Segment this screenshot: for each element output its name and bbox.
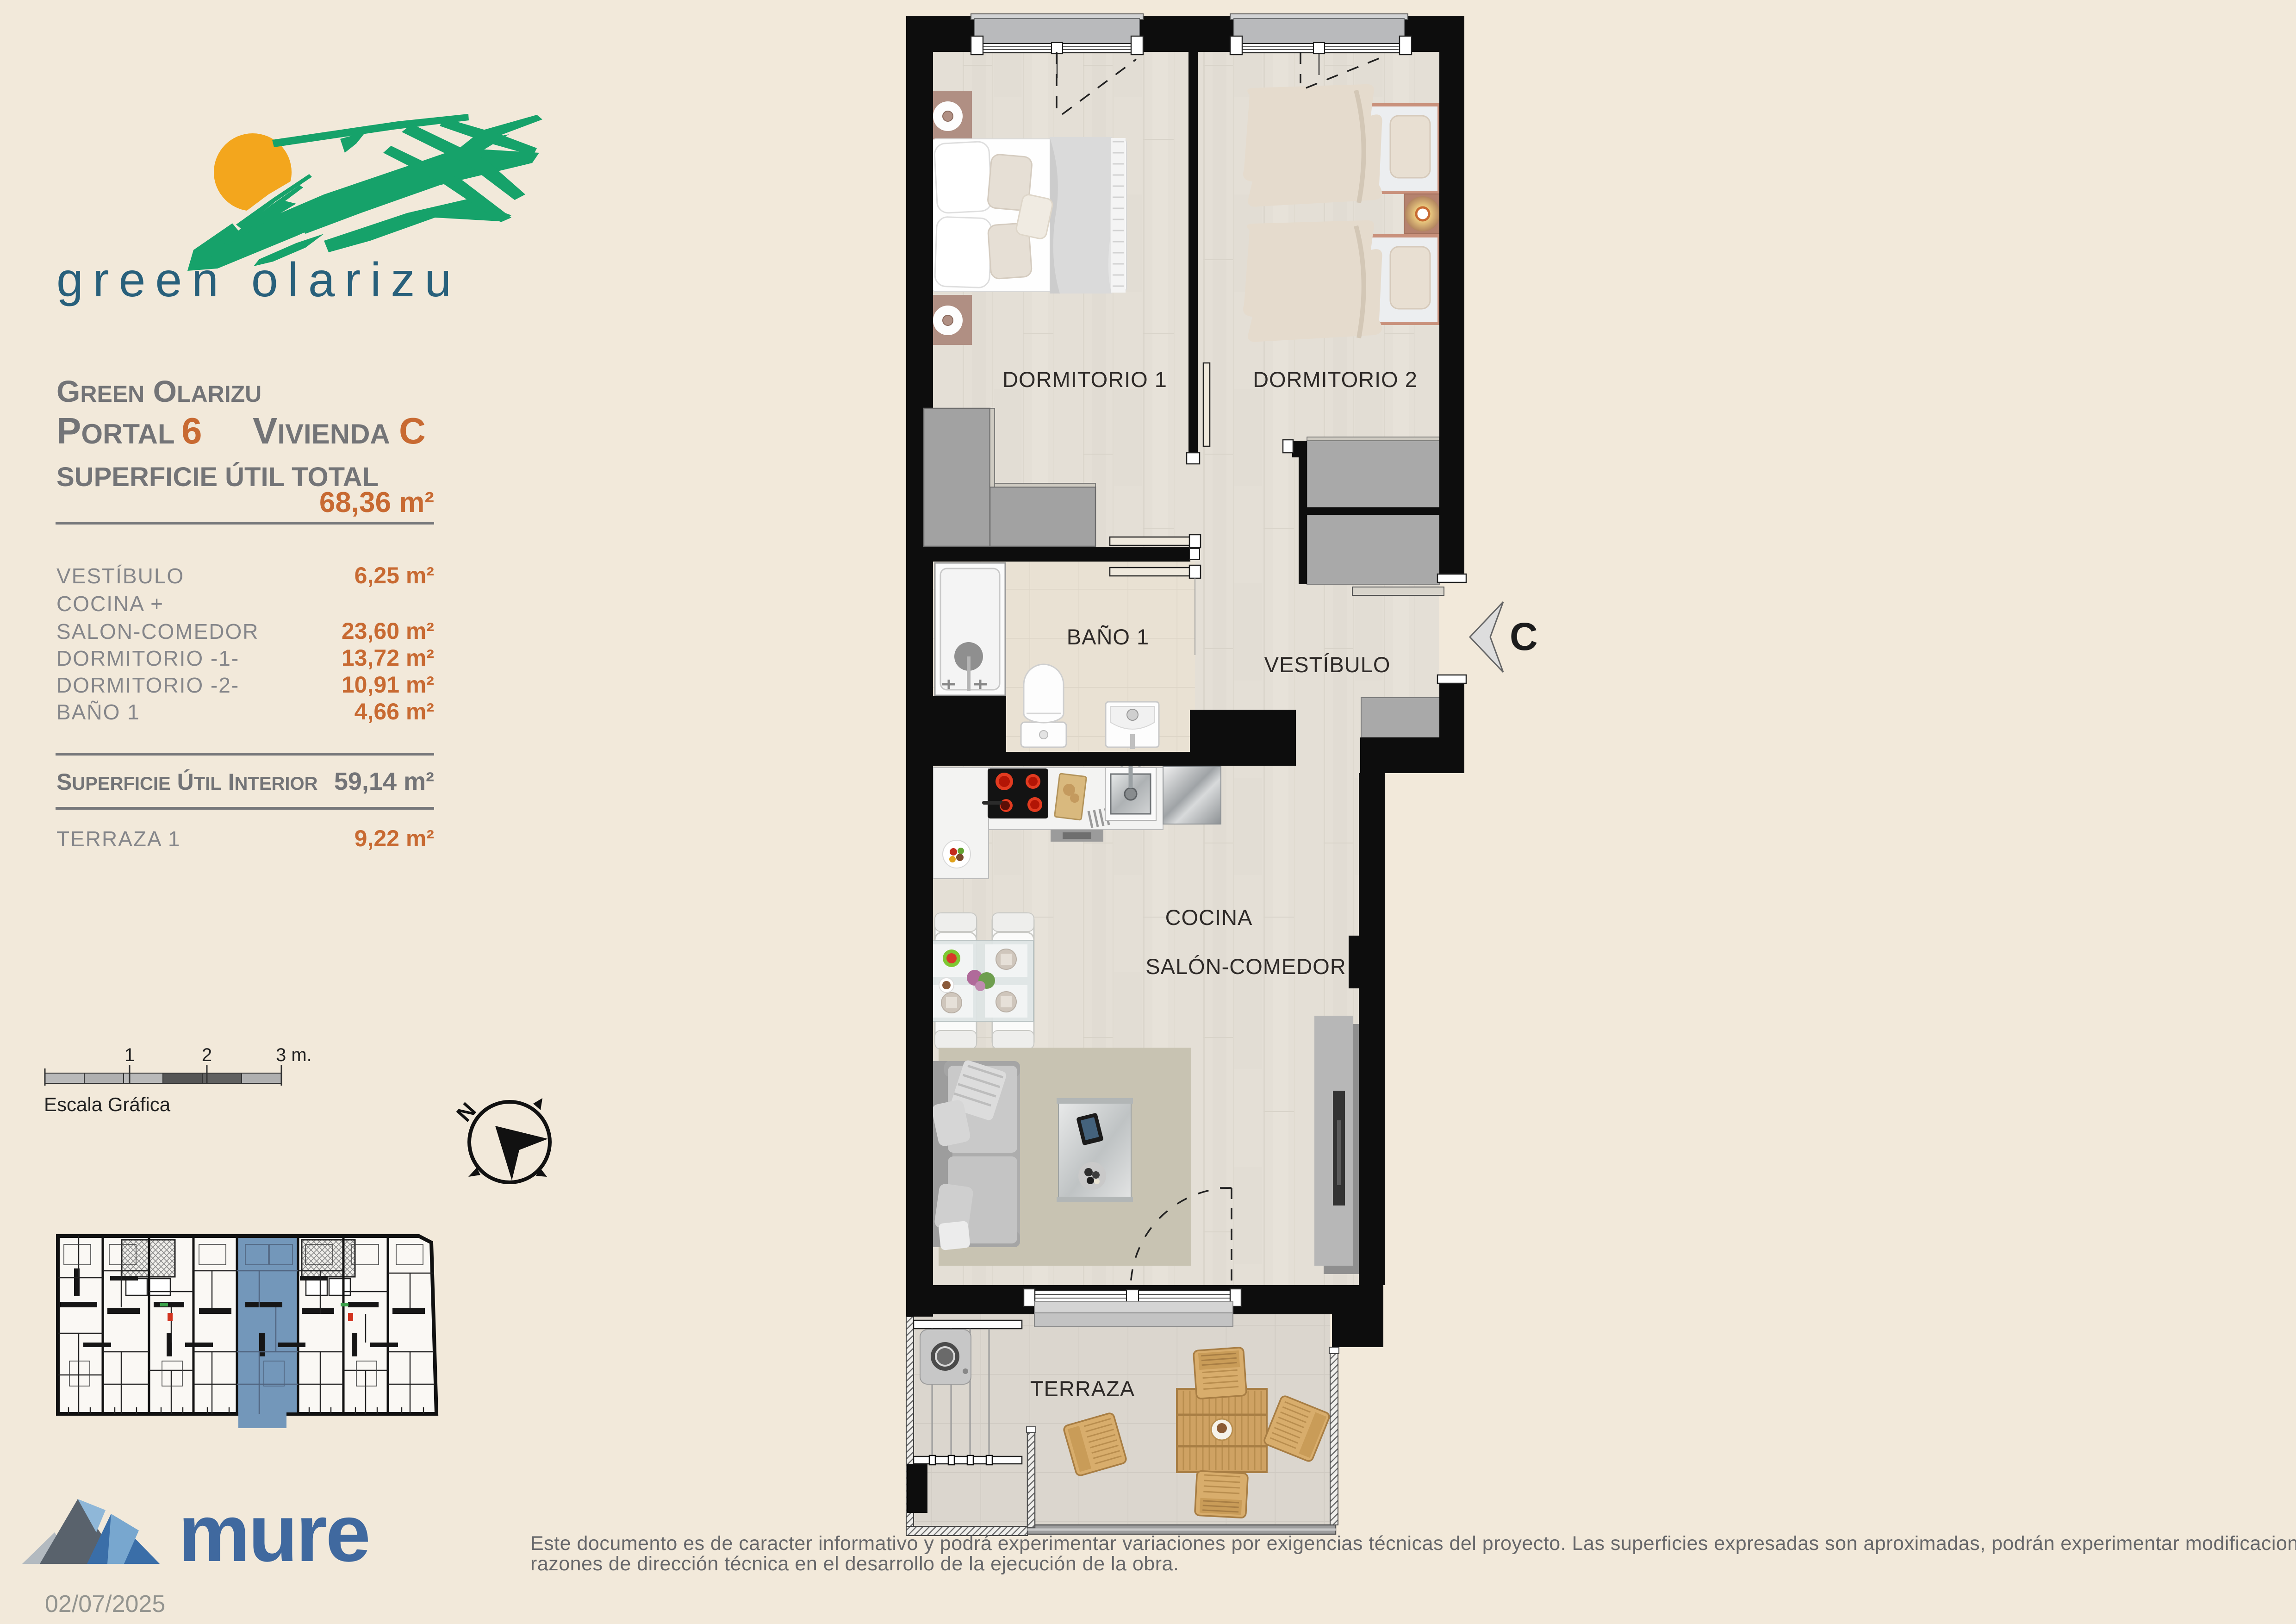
svg-text:59,14 m²: 59,14 m² [334, 768, 434, 795]
svg-text:02/07/2025: 02/07/2025 [45, 1591, 165, 1618]
svg-text:BAÑO 1: BAÑO 1 [1067, 625, 1149, 649]
svg-text:Escala Gráfica: Escala Gráfica [44, 1093, 171, 1115]
svg-text:2: 2 [202, 1045, 212, 1065]
svg-text:68,36 m²: 68,36 m² [319, 487, 434, 518]
svg-text:BAÑO 1: BAÑO 1 [56, 700, 140, 724]
svg-text:C: C [399, 410, 426, 451]
svg-text:COCINA +: COCINA + [56, 592, 164, 616]
svg-text:DORMITORIO -1-: DORMITORIO -1- [56, 646, 239, 670]
svg-text:10,91 m²: 10,91 m² [342, 672, 434, 698]
svg-text:DORMITORIO 1: DORMITORIO 1 [1002, 367, 1167, 392]
svg-text:1: 1 [124, 1045, 135, 1065]
svg-text:SALÓN-COMEDOR: SALÓN-COMEDOR [1145, 954, 1346, 979]
svg-text:23,60 m²: 23,60 m² [342, 618, 434, 644]
svg-text:razones de dirección técnica e: razones de dirección técnica en el desar… [530, 1553, 1179, 1575]
svg-text:DORMITORIO -2-: DORMITORIO -2- [56, 673, 239, 697]
svg-text:9,22 m²: 9,22 m² [355, 825, 434, 851]
svg-text:3 m.: 3 m. [276, 1045, 312, 1065]
svg-text:Este documento es de caracter: Este documento es de caracter informativ… [530, 1532, 2296, 1555]
svg-text:C: C [1510, 615, 1538, 658]
svg-text:DORMITORIO 2: DORMITORIO 2 [1253, 367, 1418, 392]
svg-text:6,25 m²: 6,25 m² [355, 562, 434, 588]
svg-text:COCINA: COCINA [1165, 905, 1253, 930]
svg-text:4,66 m²: 4,66 m² [355, 699, 434, 725]
svg-text:TERRAZA 1: TERRAZA 1 [56, 827, 181, 851]
svg-text:6: 6 [181, 410, 202, 451]
svg-text:13,72 m²: 13,72 m² [342, 645, 434, 671]
svg-text:SALON-COMEDOR: SALON-COMEDOR [56, 619, 259, 643]
svg-text:VESTÍBULO: VESTÍBULO [56, 564, 184, 588]
svg-text:TERRAZA: TERRAZA [1030, 1376, 1135, 1401]
svg-text:green olarizu: green olarizu [56, 253, 461, 307]
svg-text:VESTÍBULO: VESTÍBULO [1264, 652, 1391, 677]
svg-text:mure: mure [178, 1488, 369, 1579]
